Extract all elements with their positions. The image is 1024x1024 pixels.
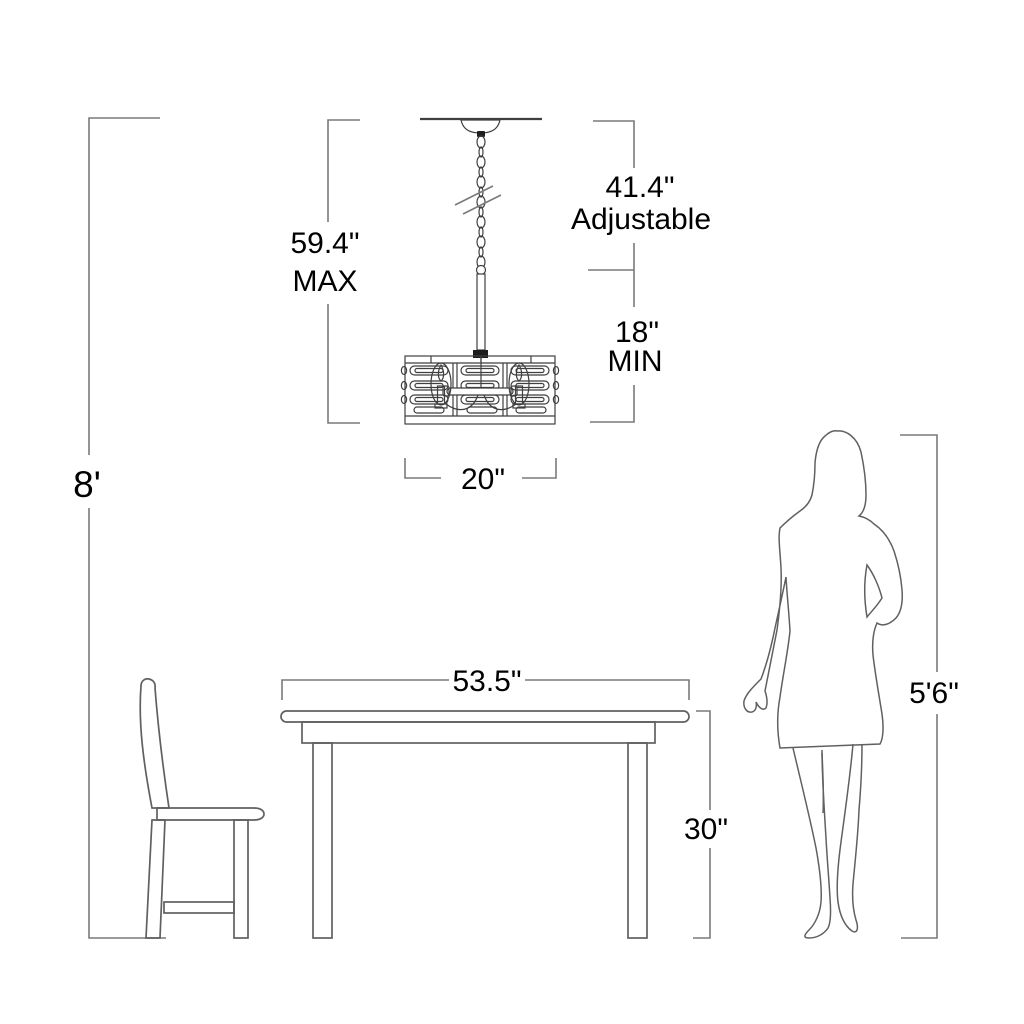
- woman-silhouette-drawing: [744, 431, 902, 938]
- min-dimension: 18" MIN: [590, 270, 663, 422]
- chair-front-leg: [234, 820, 248, 938]
- table-width-dimension: 53.5": [282, 665, 689, 700]
- adjustable-word-label: Adjustable: [571, 203, 711, 236]
- ceiling-height-label: 8': [73, 464, 101, 505]
- fixture-width-dimension: 20": [405, 458, 556, 496]
- woman-arm-gap: [865, 565, 882, 617]
- center-bar: [447, 388, 513, 395]
- dining-chair-drawing: [140, 679, 264, 938]
- chair-seat: [157, 808, 264, 820]
- down-rod: [477, 274, 485, 350]
- chair-back: [140, 679, 169, 808]
- adjustable-value-label: 41.4": [605, 171, 674, 204]
- table-top: [281, 711, 689, 722]
- dimension-diagram: 8' 59.4" MAX 41.4" Adjustable 18" MIN: [0, 0, 1024, 1024]
- fixture-body: [401, 356, 558, 424]
- max-word-label: MAX: [292, 265, 357, 298]
- table-apron: [302, 722, 655, 743]
- max-height-dimension: 59.4" MAX: [290, 120, 360, 423]
- diagram-canvas: 8' 59.4" MAX 41.4" Adjustable 18" MIN: [0, 0, 1024, 1024]
- adjustable-dimension: 41.4" Adjustable: [571, 121, 711, 270]
- table-right-leg: [628, 743, 647, 938]
- dining-table-drawing: [281, 711, 689, 938]
- person-height-dimension: 5'6": [900, 435, 959, 938]
- pendant-chandelier-drawing: [401, 119, 558, 424]
- ceiling-height-dimension: 8': [73, 118, 166, 938]
- table-height-label: 30": [684, 813, 728, 846]
- fixture-width-label: 20": [461, 463, 505, 496]
- max-value-label: 59.4": [290, 227, 359, 260]
- finial-ball: [477, 266, 486, 275]
- chain: [477, 136, 485, 268]
- table-height-dimension: 30": [684, 711, 728, 938]
- break-marks: [455, 186, 501, 214]
- person-height-label: 5'6": [909, 677, 959, 710]
- table-width-label: 53.5": [452, 665, 521, 698]
- table-left-leg: [313, 743, 332, 938]
- woman-body: [744, 431, 902, 748]
- woman-left-leg: [793, 748, 831, 938]
- woman-right-leg: [837, 744, 862, 932]
- min-word-label: MIN: [608, 345, 663, 378]
- chair-stretcher: [164, 902, 234, 913]
- chair-back-leg: [146, 820, 165, 938]
